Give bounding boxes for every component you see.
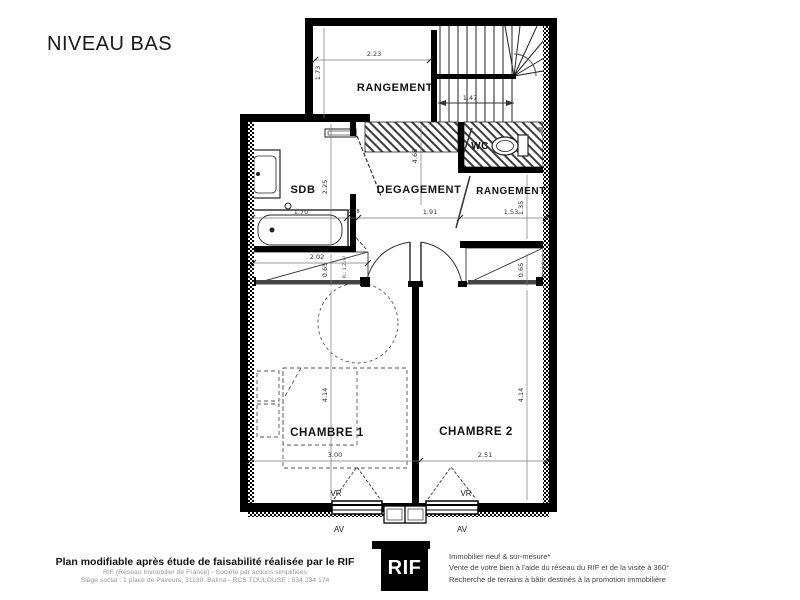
- footer-company-line: RIF (Réseau Immobilier de France) - Soci…: [40, 569, 370, 576]
- closets: [253, 248, 543, 284]
- footer-left-block: Plan modifiable après étude de faisabili…: [40, 556, 370, 584]
- dim-placard1-depth: 0.65: [321, 263, 329, 277]
- chambre2-door: [421, 242, 462, 283]
- dim-rangement-top-width: 2.23: [367, 50, 381, 58]
- dim-degagement-length: 4.68: [411, 149, 419, 163]
- dim-chambre2-depth: 4.14: [517, 388, 525, 402]
- window2-av-label: AV: [457, 525, 468, 534]
- footer-address-line: Siège social : 1 place de Paveurs, 31130…: [40, 577, 370, 584]
- dim-rangement-top-depth: 1.73: [314, 66, 322, 80]
- dim-chambre2-width: 2.51: [478, 451, 492, 459]
- toilet: [492, 135, 528, 156]
- window2-vr-label: VR: [460, 489, 471, 498]
- room-label-chambre2: CHAMBRE 2: [439, 426, 513, 438]
- closet2-area-label: PL: 0.9 m²: [541, 254, 547, 277]
- footer-service-2: Vente de votre bien à l'aide du réseau d…: [449, 562, 669, 573]
- footer-right-block: Immobilier neuf & sur-mesure* Vente de v…: [449, 551, 669, 585]
- room-label-wc: WC: [471, 141, 489, 152]
- dim-rangement-right-depth: 1.35: [517, 201, 525, 215]
- dim-chambre1-depth: 4.14: [321, 388, 329, 402]
- footer-plan-note: Plan modifiable après étude de faisabili…: [40, 556, 370, 568]
- windows: [332, 467, 478, 549]
- closet1-area-label: PL: 1.2 m²: [342, 255, 348, 278]
- dim-chambre1-width: 3.00: [328, 451, 342, 459]
- footer-service-3: Recherche de terrains à bâtir destinés à…: [449, 574, 669, 585]
- window-chambre2: [426, 501, 478, 514]
- dim-stair-width: 1.47: [463, 94, 477, 102]
- footer-service-1: Immobilier neuf & sur-mesure*: [449, 551, 669, 562]
- dim-placard1-width: 2.02: [310, 253, 324, 261]
- dim-degagement-width: 1.91: [423, 208, 437, 216]
- room-label-rangement-right: RANGEMENT: [476, 186, 546, 197]
- room-label-rangement-top: RANGEMENT: [357, 82, 433, 94]
- dim-placard2-depth: 0.65: [517, 263, 525, 277]
- room-label-degagement: DEGAGEMENT: [377, 184, 462, 196]
- rif-logo: RIF: [381, 546, 428, 591]
- window-chambre1: [332, 501, 382, 514]
- dim-bath-length: 1.70: [294, 208, 308, 216]
- room-label-chambre1: CHAMBRE 1: [290, 427, 364, 439]
- dim-sdb-depth: 2.25: [321, 180, 329, 194]
- turning-circle: [318, 283, 398, 363]
- bath-tap: [285, 203, 291, 209]
- bedroom-furniture: [257, 283, 407, 468]
- floor-plan: 1.47: [0, 0, 800, 600]
- window1-vr-label: VR: [330, 489, 341, 498]
- wall-insulation: [248, 26, 549, 517]
- window1-av-label: AV: [334, 525, 345, 534]
- room-label-sdb: SDB: [290, 184, 315, 196]
- dim-sdb-door: 0.38: [348, 209, 359, 215]
- chambre1-door: [366, 242, 410, 283]
